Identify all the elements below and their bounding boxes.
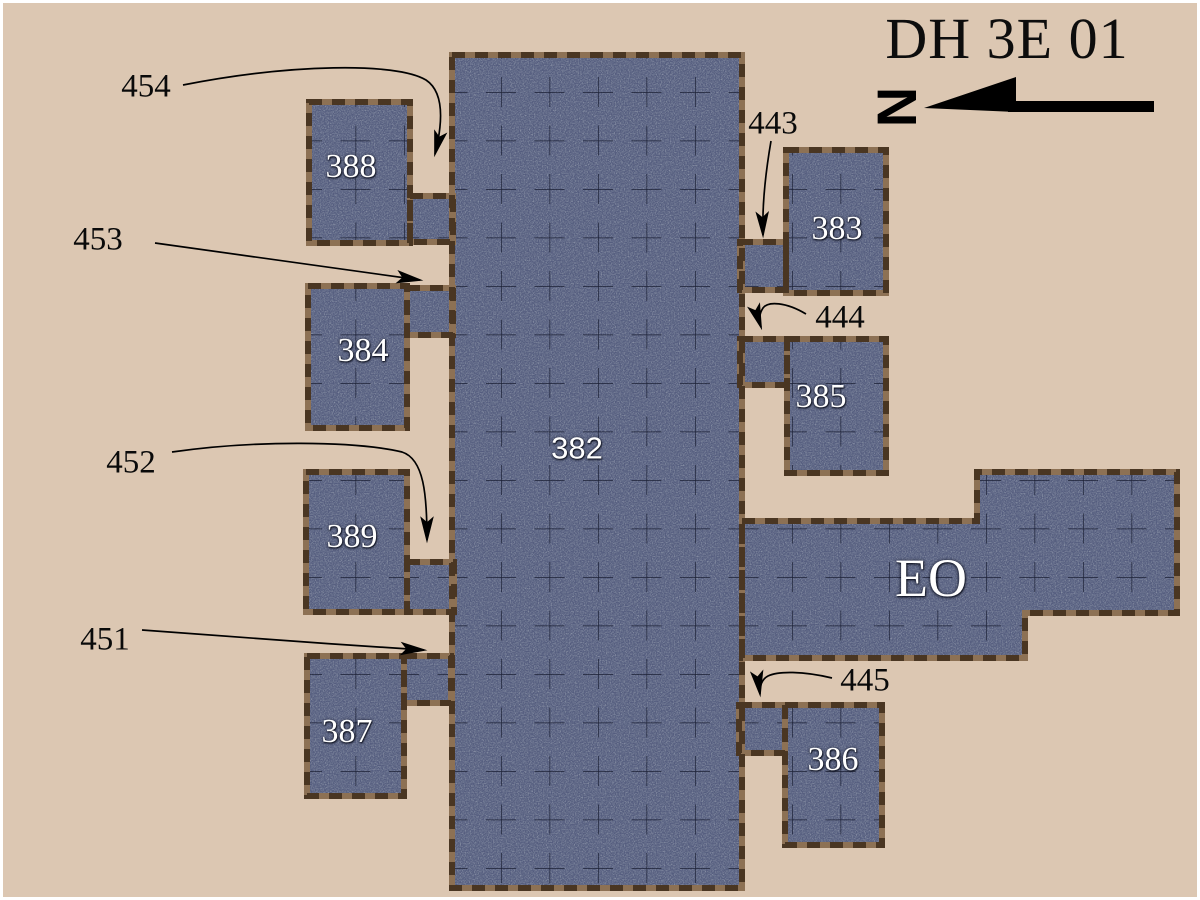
room-label-382: 382 (551, 433, 603, 464)
room-label-388: 388 (326, 150, 377, 184)
room-label-385: 385 (796, 380, 847, 414)
room-label-383: 383 (812, 212, 863, 246)
arrow-443 (763, 141, 771, 235)
room-label-384: 384 (338, 334, 389, 368)
room-label-389: 389 (327, 520, 378, 554)
north-arrow (924, 77, 1154, 112)
arrow-453 (155, 243, 420, 280)
annotation-label-445: 445 (840, 665, 890, 698)
annotation-label-451: 451 (80, 624, 130, 657)
north-arrow-head (924, 77, 1016, 112)
arrow-445 (760, 672, 832, 694)
annotation-label-453: 453 (73, 224, 123, 257)
arrow-444 (760, 304, 806, 327)
annotation-label-443: 443 (748, 108, 798, 141)
arrow-451 (142, 630, 424, 650)
dungeon-map-page: DH 3E 01 N 382 383 384 385 386 387 388 3… (0, 0, 1200, 900)
corridor-label-eo: EO (895, 551, 967, 605)
north-arrow-bar (1008, 101, 1154, 112)
annotation-label-444: 444 (815, 302, 865, 335)
annotation-label-452: 452 (106, 447, 156, 480)
map-title: DH 3E 01 (885, 10, 1128, 68)
room-label-387: 387 (322, 715, 373, 749)
north-letter: N (869, 87, 925, 127)
room-label-386: 386 (808, 743, 859, 777)
annotation-label-454: 454 (121, 71, 171, 104)
